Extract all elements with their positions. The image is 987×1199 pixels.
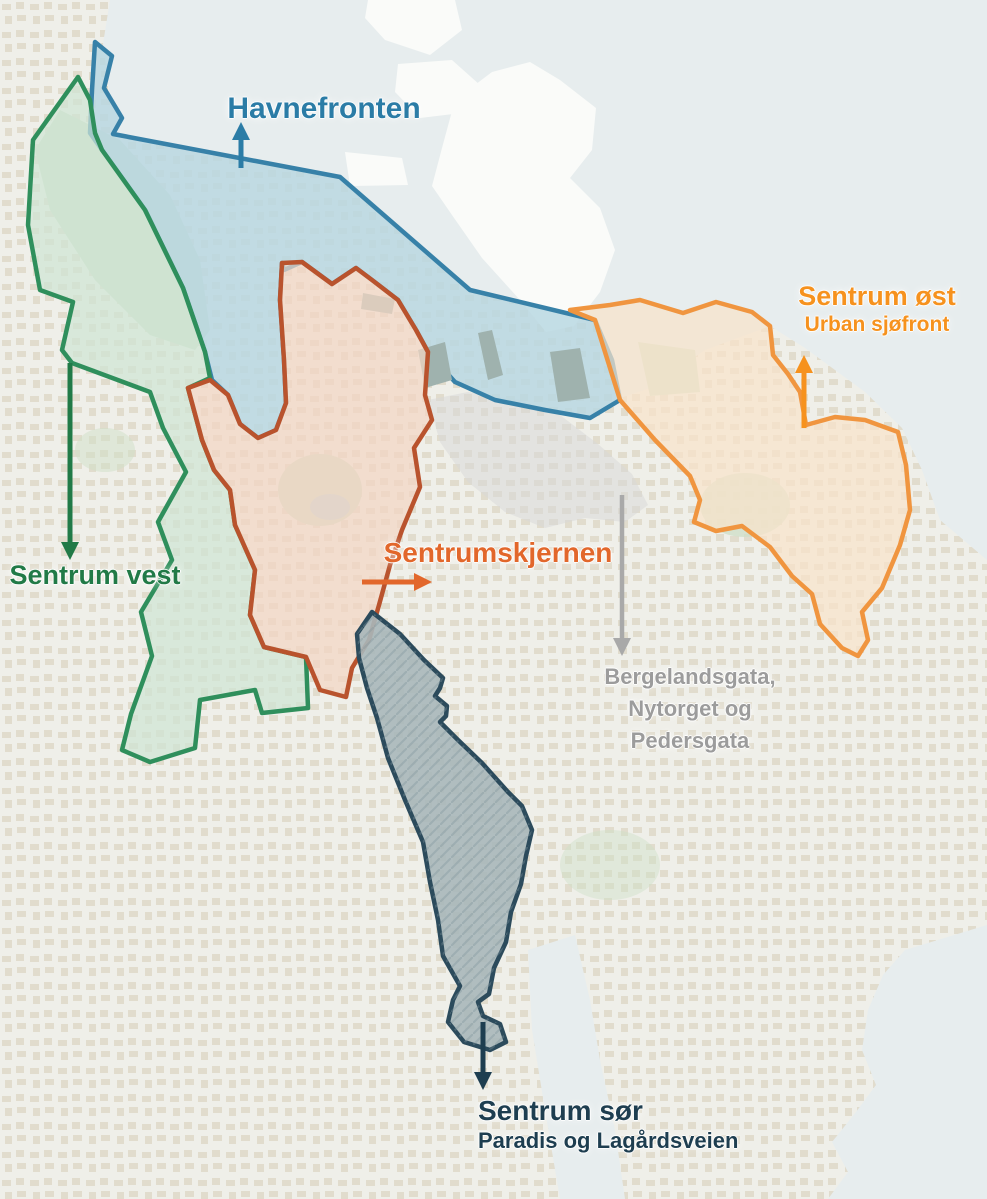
district-map-figure: Havnefronten Sentrum øst Urban sjøfront … bbox=[0, 0, 987, 1199]
bergelandsgata-label-line3: Pedersgata bbox=[604, 725, 775, 757]
map-canvas bbox=[0, 0, 987, 1199]
bergelandsgata-label: Bergelandsgata, Nytorget og Pedersgata bbox=[604, 661, 775, 757]
sentrum-ost-label-subtitle: Urban sjøfront bbox=[798, 312, 956, 337]
sentrumskjernen-label: Sentrumskjernen bbox=[384, 537, 613, 569]
park-area bbox=[75, 428, 135, 472]
park-area bbox=[560, 830, 660, 900]
sentrum-sor-label-subtitle: Paradis og Lagårdsveien bbox=[478, 1128, 738, 1154]
sentrum-sor-label: Sentrum sør Paradis og Lagårdsveien bbox=[478, 1094, 738, 1154]
sentrum-ost-label-title: Sentrum øst bbox=[798, 281, 956, 312]
sentrum-vest-label: Sentrum vest bbox=[9, 560, 180, 591]
bergelandsgata-label-line1: Bergelandsgata, bbox=[604, 661, 775, 693]
sentrum-sor-label-title: Sentrum sør bbox=[478, 1094, 738, 1128]
sentrum-ost-label: Sentrum øst Urban sjøfront bbox=[798, 281, 956, 337]
havnefronten-label: Havnefronten bbox=[227, 92, 420, 126]
bergelandsgata-label-line2: Nytorget og bbox=[604, 693, 775, 725]
